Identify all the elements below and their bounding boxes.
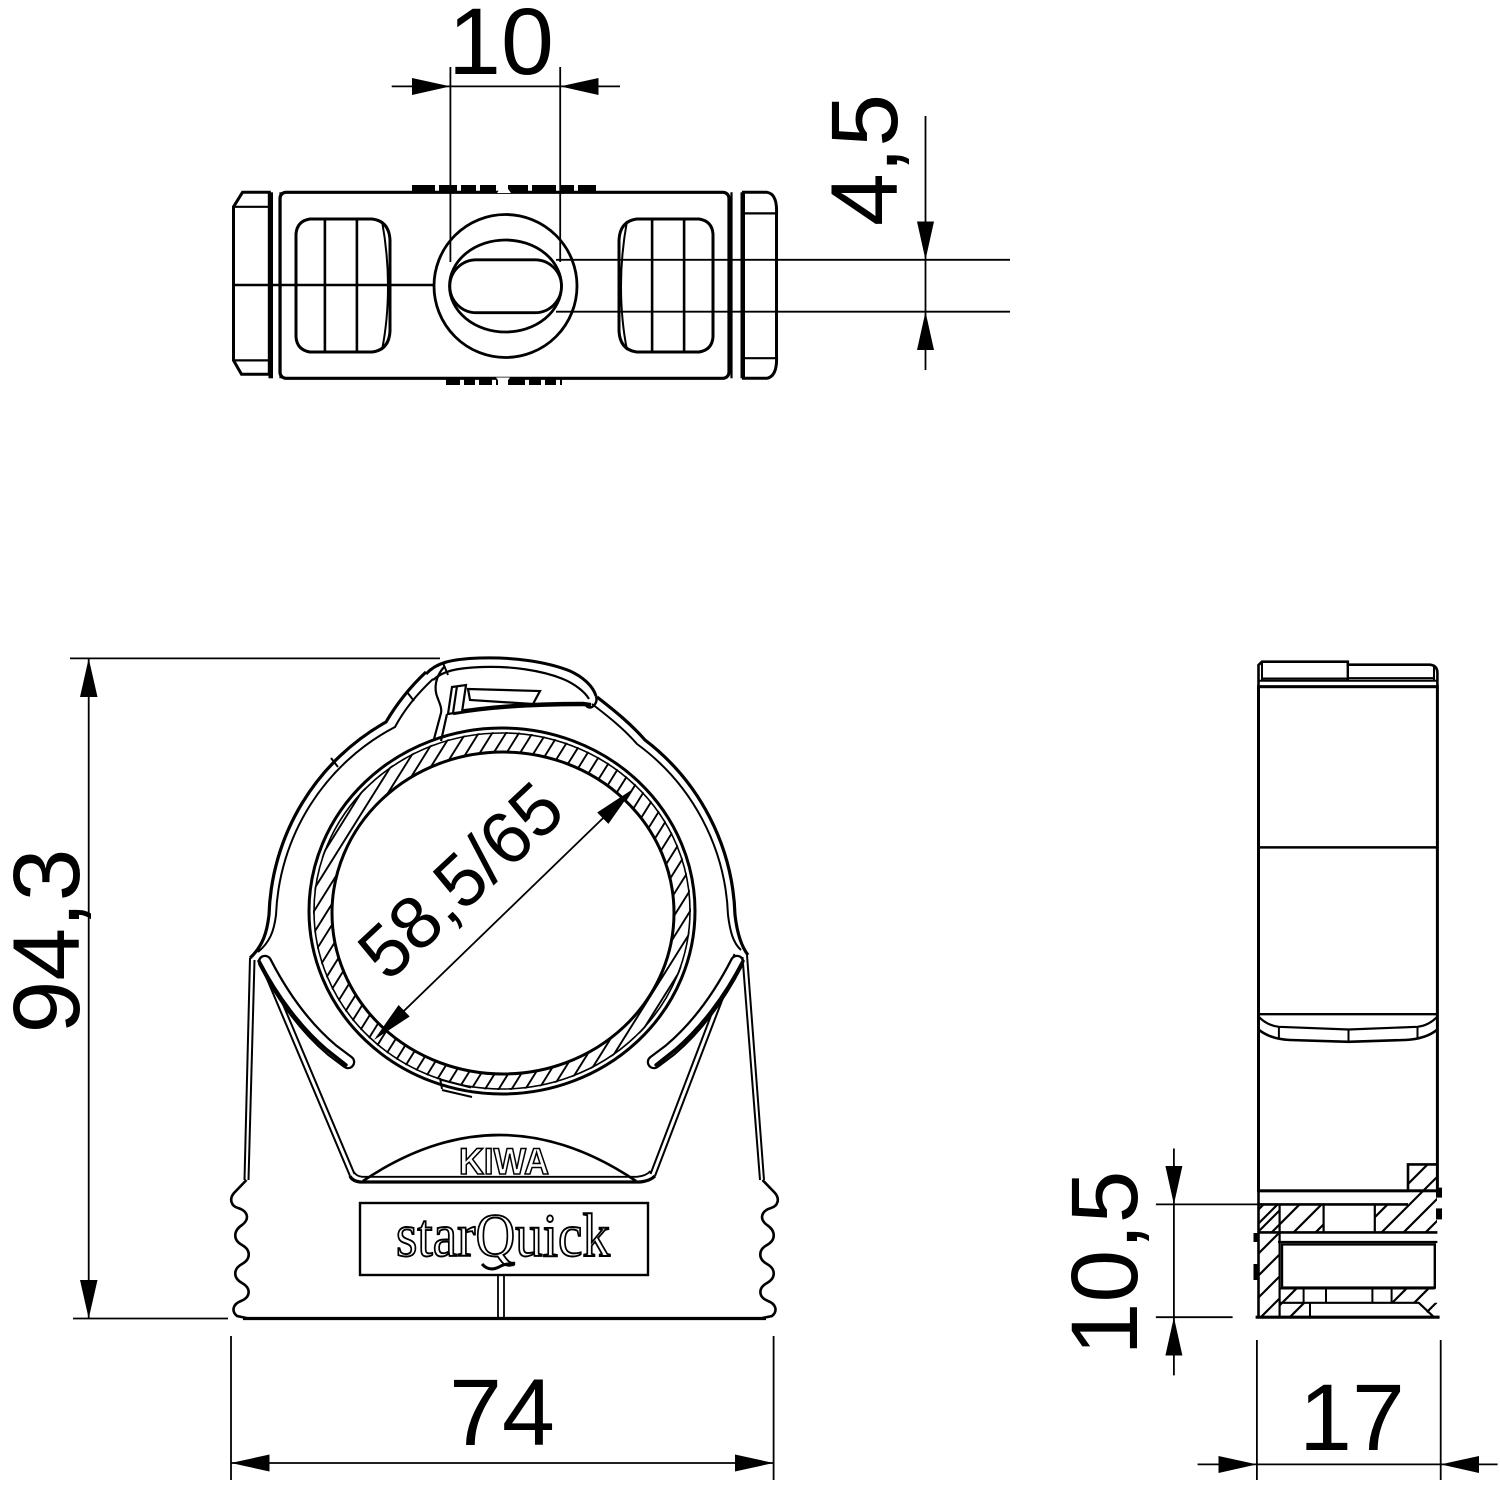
- svg-text:10,5: 10,5: [1052, 1171, 1158, 1356]
- svg-text:starQuick: starQuick: [396, 1203, 610, 1270]
- svg-text:17: 17: [1299, 1365, 1405, 1471]
- svg-text:4,5: 4,5: [812, 94, 918, 226]
- svg-text:94,3: 94,3: [0, 849, 100, 1034]
- svg-text:10: 10: [448, 0, 554, 95]
- svg-text:74: 74: [449, 1360, 555, 1466]
- svg-text:KIWA: KIWA: [459, 1141, 549, 1182]
